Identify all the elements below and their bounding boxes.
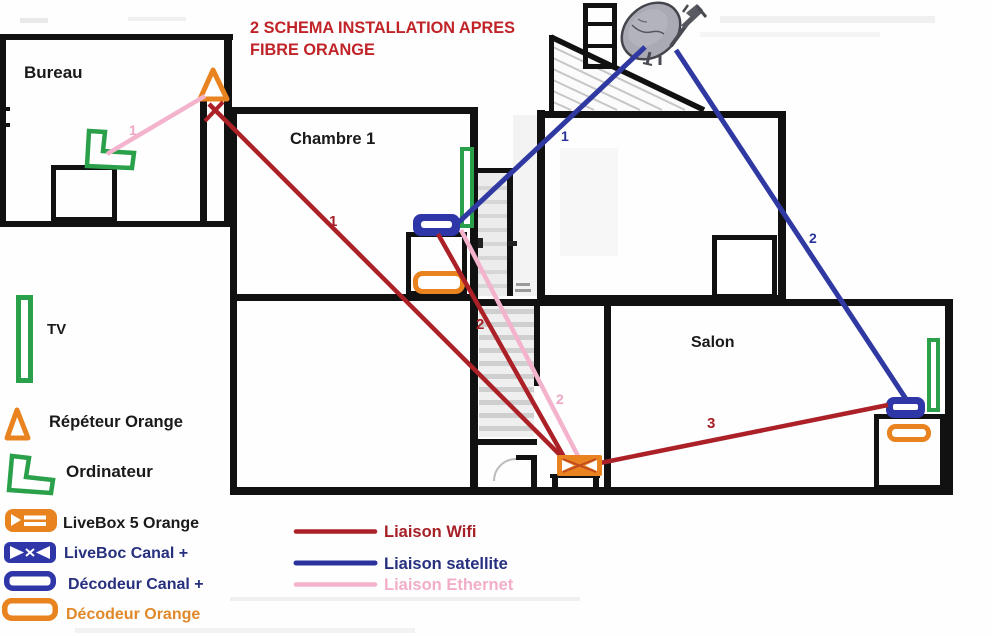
svg-text:2: 2 bbox=[556, 391, 564, 407]
svg-text:TV: TV bbox=[47, 321, 66, 338]
svg-text:1: 1 bbox=[561, 128, 569, 144]
svg-text:Décodeur Canal +: Décodeur Canal + bbox=[68, 576, 204, 593]
svg-text:LiveBoc Canal +: LiveBoc Canal + bbox=[64, 545, 188, 562]
svg-text:1: 1 bbox=[129, 122, 137, 138]
svg-text:Salon: Salon bbox=[691, 334, 735, 351]
svg-text:2: 2 bbox=[476, 316, 484, 333]
svg-text:FIBRE ORANGE: FIBRE ORANGE bbox=[250, 41, 375, 59]
svg-text:2 SCHEMA INSTALLATION APRES: 2 SCHEMA INSTALLATION APRES bbox=[250, 19, 515, 37]
svg-text:Liaison Ethernet: Liaison Ethernet bbox=[384, 576, 514, 594]
svg-text:Répéteur Orange: Répéteur Orange bbox=[49, 413, 183, 431]
svg-text:1: 1 bbox=[329, 213, 337, 230]
svg-text:3: 3 bbox=[707, 415, 715, 432]
svg-text:Liaison satellite: Liaison satellite bbox=[384, 555, 508, 573]
svg-text:Liaison Wifi: Liaison Wifi bbox=[384, 523, 476, 541]
svg-text:Chambre 1: Chambre 1 bbox=[290, 130, 375, 148]
svg-text:Bureau: Bureau bbox=[24, 63, 83, 82]
svg-text:2: 2 bbox=[809, 230, 817, 246]
svg-text:Ordinateur: Ordinateur bbox=[66, 462, 153, 481]
svg-text:LiveBox 5 Orange: LiveBox 5 Orange bbox=[63, 515, 199, 532]
svg-text:Décodeur Orange: Décodeur Orange bbox=[66, 606, 200, 623]
